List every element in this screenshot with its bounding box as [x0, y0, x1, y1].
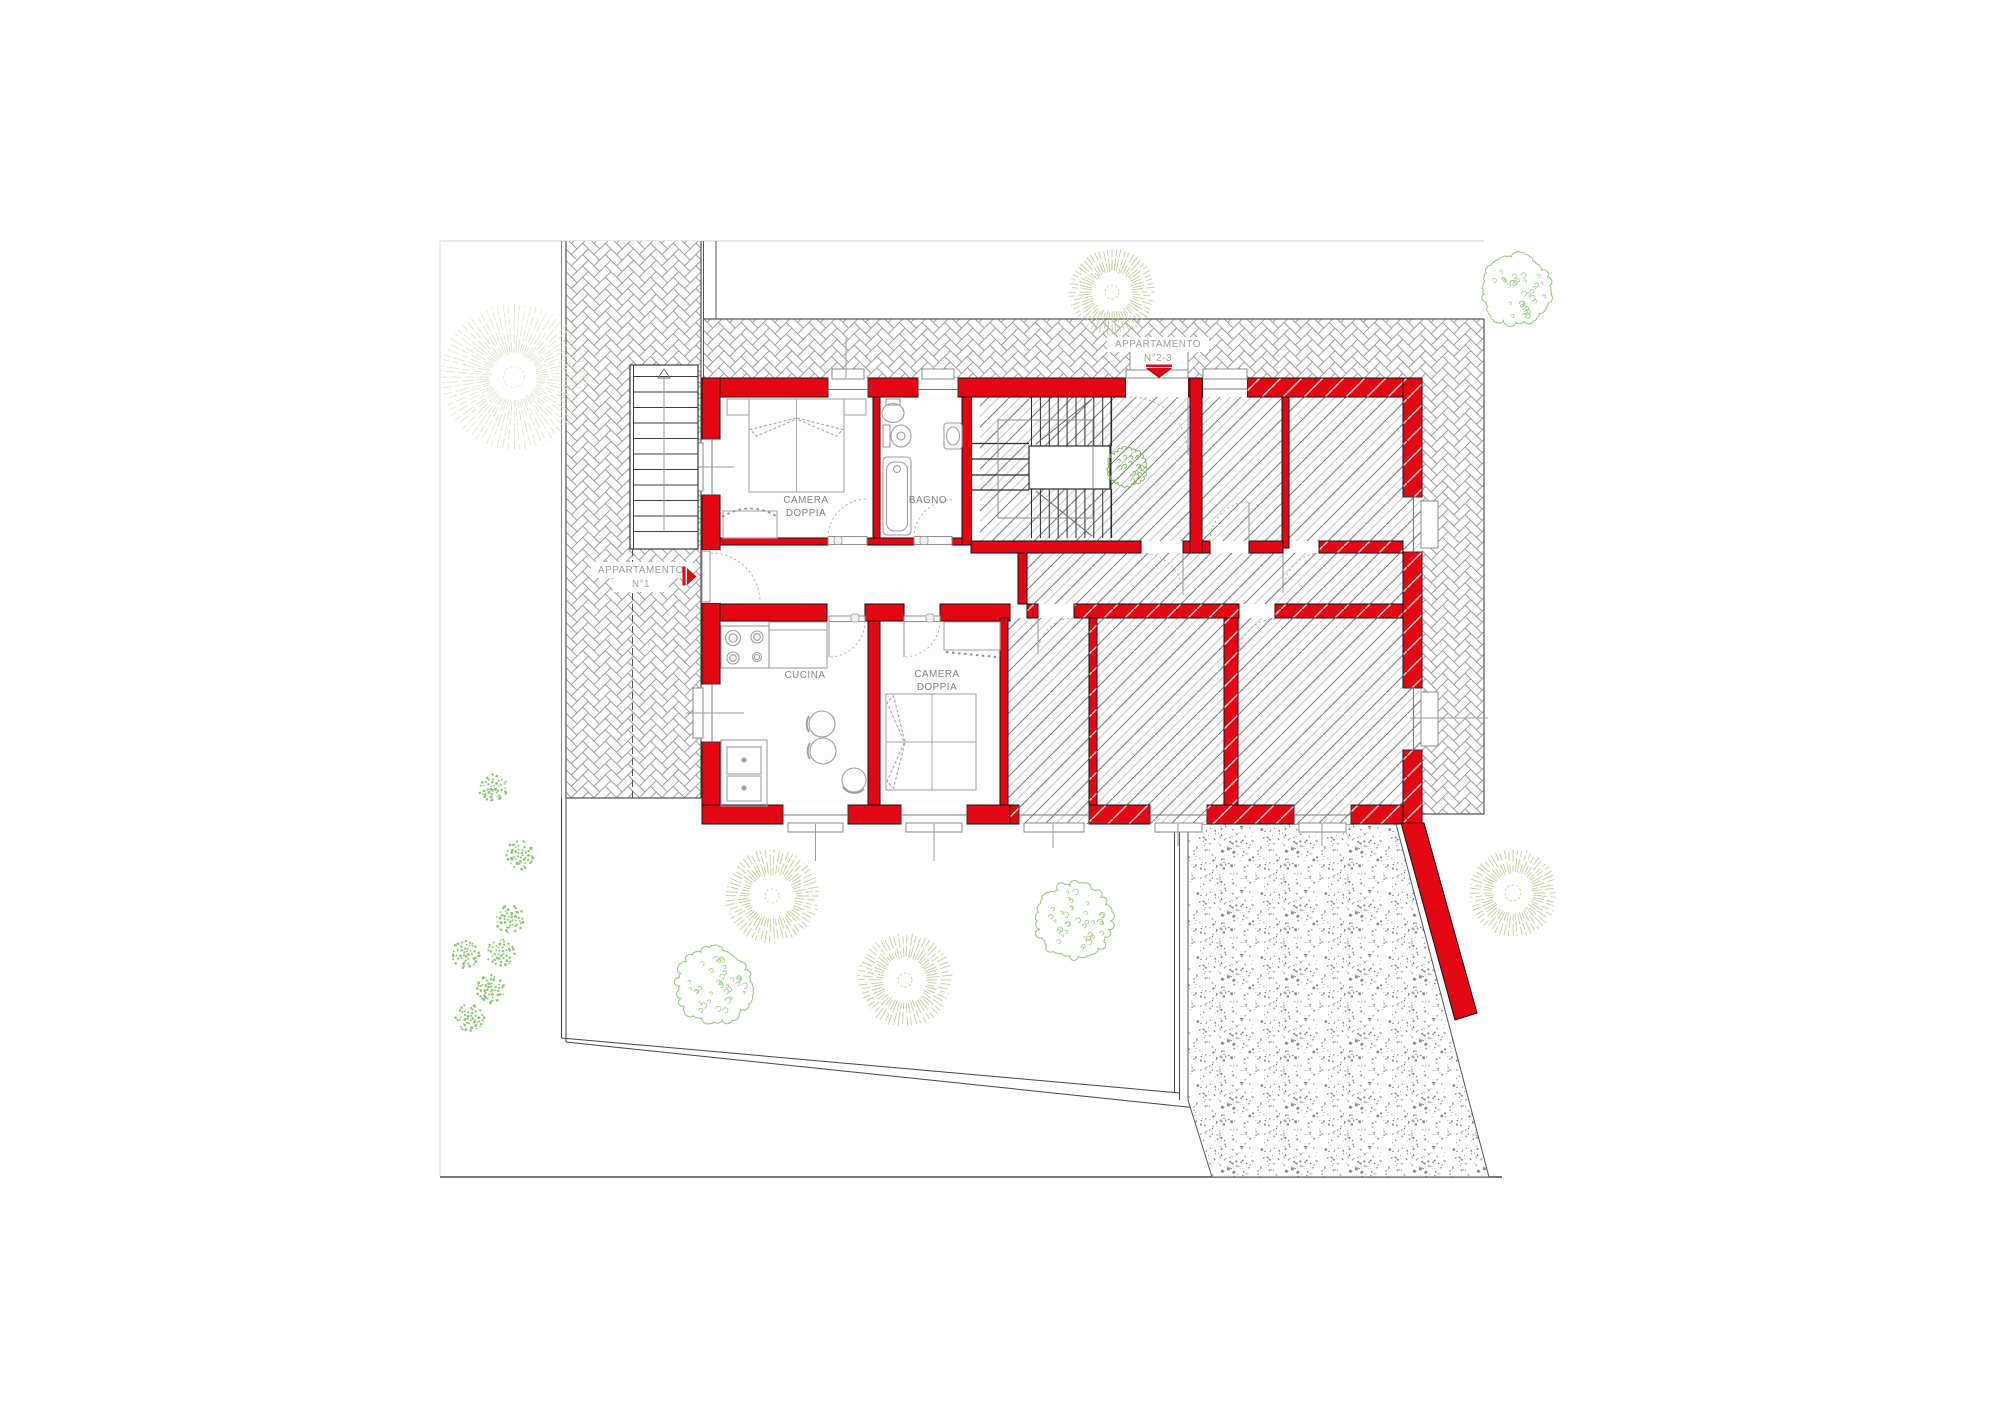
- svg-text:APPARTAMENTO: APPARTAMENTO: [1115, 339, 1201, 350]
- svg-text:APPARTAMENTO: APPARTAMENTO: [598, 565, 684, 576]
- svg-text:DOPPIA: DOPPIA: [786, 508, 826, 519]
- svg-text:DOPPIA: DOPPIA: [917, 682, 957, 693]
- svg-text:CUCINA: CUCINA: [785, 670, 826, 681]
- svg-text:N°1: N°1: [632, 579, 650, 590]
- svg-text:BAGNO: BAGNO: [909, 495, 947, 506]
- svg-text:CAMERA: CAMERA: [914, 669, 959, 680]
- svg-text:N°2-3: N°2-3: [1144, 353, 1172, 364]
- svg-text:CAMERA: CAMERA: [783, 495, 828, 506]
